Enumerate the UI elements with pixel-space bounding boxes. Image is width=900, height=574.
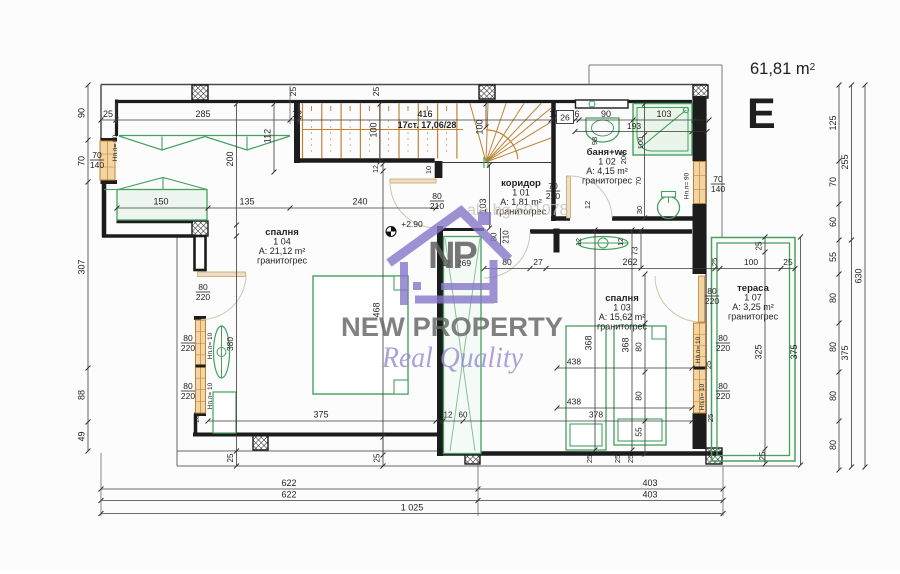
svg-text:255: 255	[840, 154, 850, 169]
svg-text:140: 140	[90, 160, 104, 170]
svg-text:Нп.п= 10: Нп.п= 10	[695, 336, 702, 363]
svg-text:438: 438	[567, 357, 581, 367]
svg-text:25: 25	[373, 453, 382, 462]
svg-text:438: 438	[567, 397, 581, 407]
svg-text:103: 103	[656, 109, 671, 119]
svg-text:25: 25	[758, 451, 767, 460]
svg-text:27: 27	[533, 257, 543, 267]
svg-text:622: 622	[281, 490, 296, 500]
svg-text:403: 403	[642, 478, 657, 488]
svg-text:307: 307	[77, 259, 87, 274]
svg-text:60: 60	[459, 411, 468, 420]
svg-text:220: 220	[196, 292, 210, 302]
svg-text:70: 70	[548, 181, 558, 191]
svg-text:E: E	[747, 90, 776, 138]
svg-text:80: 80	[183, 381, 193, 391]
svg-text:1 03: 1 03	[613, 303, 631, 313]
svg-text:A: 4,15 m²: A: 4,15 m²	[586, 166, 628, 176]
svg-text:60: 60	[828, 217, 838, 227]
svg-text:70: 70	[713, 174, 723, 184]
svg-text:200: 200	[225, 151, 235, 166]
svg-text:25: 25	[755, 241, 764, 250]
svg-text:55: 55	[828, 252, 838, 262]
svg-text:25: 25	[585, 455, 594, 463]
svg-text:25: 25	[706, 414, 715, 422]
svg-text:622: 622	[281, 478, 296, 488]
svg-text:25: 25	[783, 257, 793, 267]
svg-text:220: 220	[181, 391, 195, 401]
svg-text:80: 80	[718, 381, 728, 391]
svg-text:12: 12	[292, 109, 302, 119]
svg-text:Real Quality: Real Quality	[381, 341, 524, 374]
svg-text:325: 325	[754, 344, 764, 359]
svg-text:210: 210	[502, 230, 511, 244]
svg-text:25: 25	[288, 87, 298, 97]
svg-text:70: 70	[634, 177, 643, 185]
svg-text:70: 70	[77, 156, 87, 166]
svg-text:A: 15,62 m²: A: 15,62 m²	[599, 312, 646, 322]
svg-text:88: 88	[77, 390, 87, 400]
svg-text:80: 80	[828, 293, 838, 303]
svg-text:12: 12	[618, 238, 625, 246]
svg-text:25: 25	[626, 455, 635, 463]
svg-text:1 025: 1 025	[401, 503, 424, 513]
svg-text:112: 112	[263, 129, 273, 143]
svg-text:240: 240	[352, 197, 367, 207]
svg-text:55: 55	[634, 427, 644, 437]
svg-text:375: 375	[840, 345, 850, 360]
svg-text:80: 80	[634, 391, 644, 401]
svg-text:1 04: 1 04	[273, 237, 291, 247]
svg-text:80: 80	[432, 191, 442, 201]
svg-text:12: 12	[576, 238, 583, 246]
svg-text:17ст. 17,06/28: 17ст. 17,06/28	[398, 120, 457, 130]
svg-text:378: 378	[589, 410, 603, 420]
svg-text:380: 380	[225, 337, 235, 351]
svg-text:80: 80	[707, 286, 717, 296]
svg-text:80: 80	[634, 342, 644, 352]
svg-text:375: 375	[313, 410, 328, 420]
svg-text:Нп.п= 10: Нп.п= 10	[207, 332, 214, 359]
svg-text:100: 100	[475, 119, 485, 134]
svg-text:80: 80	[198, 282, 208, 292]
svg-text:12: 12	[583, 201, 592, 209]
svg-text:135: 135	[239, 197, 254, 207]
svg-text:193: 193	[627, 121, 641, 131]
svg-text:1 01: 1 01	[512, 188, 530, 198]
svg-text:630: 630	[854, 268, 864, 283]
svg-text:25: 25	[704, 361, 713, 369]
svg-text:6: 6	[574, 109, 579, 119]
svg-text:гранитогрес: гранитогрес	[257, 256, 308, 266]
svg-text:NP: NP	[428, 235, 477, 277]
svg-text:70: 70	[828, 177, 838, 187]
svg-text:Нп.п= 90: Нп.п= 90	[684, 172, 691, 199]
svg-text:61,81 m2: 61,81 m2	[750, 60, 816, 78]
svg-text:гранитогрес: гранитогрес	[597, 322, 648, 332]
svg-text:100: 100	[744, 257, 758, 267]
svg-text:140: 140	[711, 184, 725, 194]
svg-text:220: 220	[705, 296, 719, 306]
svg-text:150: 150	[153, 197, 168, 207]
svg-text:90: 90	[77, 108, 87, 118]
svg-text:+2.90: +2.90	[401, 219, 423, 229]
svg-text:210: 210	[430, 201, 444, 211]
svg-text:25: 25	[371, 87, 381, 97]
svg-text:285: 285	[195, 109, 210, 119]
svg-text:220: 220	[181, 343, 195, 353]
svg-text:20: 20	[194, 415, 201, 423]
svg-text:A: 3,25 m²: A: 3,25 m²	[732, 302, 774, 312]
svg-text:100: 100	[636, 137, 645, 150]
svg-text:Нп.п= 90: Нп.п= 90	[112, 134, 119, 161]
svg-text:98: 98	[590, 137, 599, 145]
svg-text:Нп.п= 10: Нп.п= 10	[207, 382, 214, 409]
svg-text:375: 375	[789, 344, 799, 359]
svg-text:80: 80	[828, 440, 838, 450]
svg-text:90: 90	[601, 109, 611, 119]
svg-text:12: 12	[444, 411, 453, 420]
svg-text:80: 80	[718, 333, 728, 343]
svg-text:70: 70	[92, 150, 102, 160]
svg-text:гранитогрес: гранитогрес	[728, 312, 779, 322]
svg-text:Нп.п= 10: Нп.п= 10	[699, 383, 706, 410]
svg-text:A: 21,12 m²: A: 21,12 m²	[259, 246, 306, 256]
svg-text:416: 416	[417, 109, 432, 119]
svg-text:гранитогрес: гранитогрес	[582, 176, 633, 186]
svg-text:1 07: 1 07	[744, 293, 762, 303]
svg-text:210: 210	[546, 191, 560, 201]
svg-text:25: 25	[697, 109, 707, 119]
svg-text:25: 25	[710, 258, 719, 266]
svg-text:368: 368	[621, 337, 631, 352]
svg-text:30: 30	[635, 206, 644, 214]
svg-text:NEW PROPERTY: NEW PROPERTY	[341, 312, 563, 342]
svg-text:100: 100	[369, 122, 379, 137]
svg-text:262: 262	[622, 257, 637, 267]
svg-text:220: 220	[716, 343, 730, 353]
svg-text:73: 73	[631, 246, 640, 255]
svg-text:49: 49	[77, 431, 87, 441]
svg-text:26: 26	[560, 113, 570, 123]
svg-text:80: 80	[183, 333, 193, 343]
svg-text:220: 220	[716, 391, 730, 401]
svg-text:125: 125	[828, 115, 838, 130]
svg-text:80: 80	[828, 391, 838, 401]
svg-text:403: 403	[642, 490, 657, 500]
svg-text:25: 25	[695, 121, 705, 131]
svg-text:12: 12	[373, 165, 380, 173]
svg-text:25: 25	[613, 455, 622, 463]
svg-text:25: 25	[103, 109, 113, 119]
svg-text:368: 368	[584, 335, 594, 350]
svg-text:80: 80	[828, 342, 838, 352]
svg-text:1 02: 1 02	[598, 157, 616, 167]
svg-text:10: 10	[424, 166, 433, 174]
svg-text:25: 25	[226, 453, 235, 462]
